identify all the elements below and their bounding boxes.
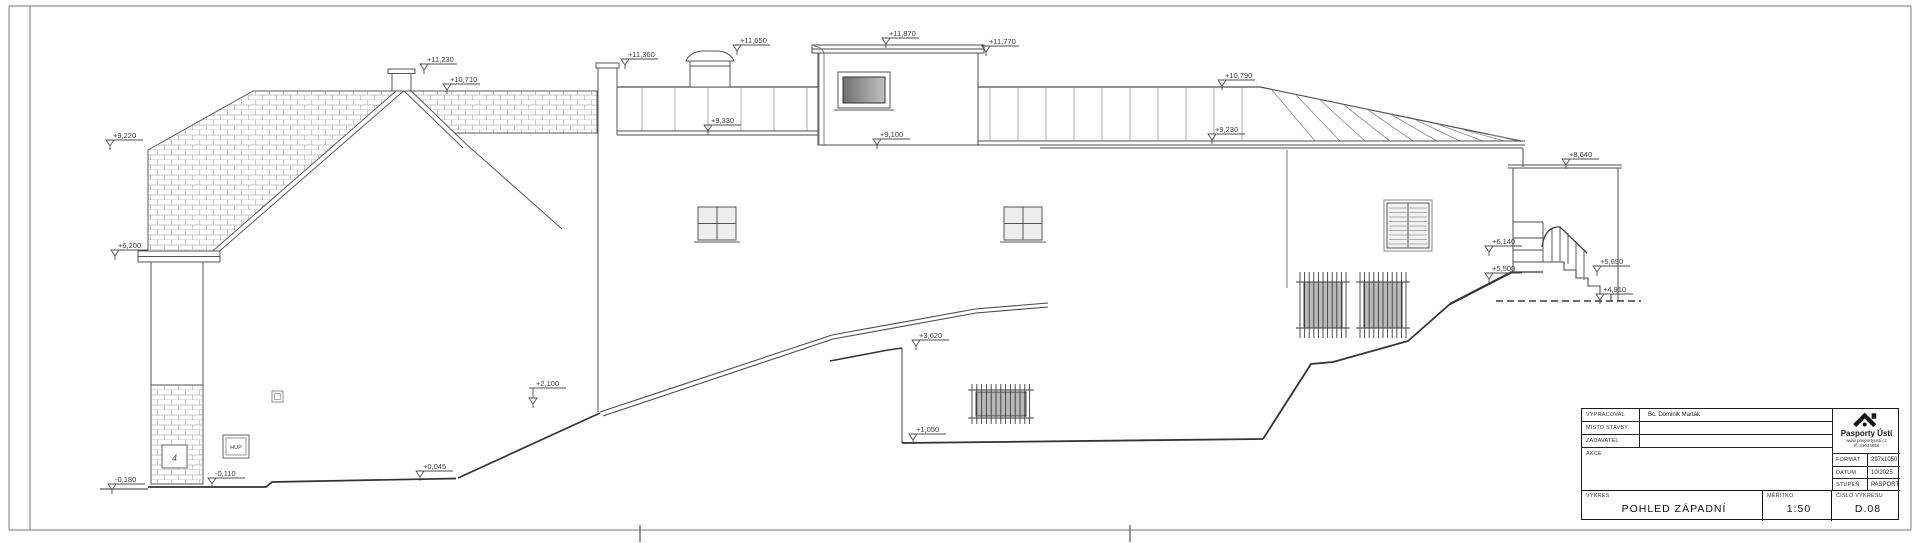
titleblock-label-zadavatel: ZADAVATEL (1582, 435, 1640, 448)
chimney-left (388, 69, 415, 91)
stupen-value: PASPORT (1868, 479, 1900, 491)
vykres-label: VÝKRES (1586, 493, 1610, 499)
titleblock-label-misto-stavby: MÍSTO STAVBY (1582, 422, 1640, 435)
elevation-label: +11,870 (889, 29, 916, 38)
format-label: FORMÁT (1832, 454, 1868, 467)
elevation-marker: +9,220 (106, 131, 143, 150)
elevation-label: +9,330 (711, 116, 734, 125)
window-4pane-left (694, 207, 740, 242)
house-number: 4 (172, 453, 177, 463)
wall-backdrop (598, 45, 1618, 443)
elevation-label: +5,690 (1600, 257, 1623, 266)
titleblock-value-zadavatel (1640, 435, 1832, 448)
barred-window-1 (1296, 272, 1350, 338)
elevation-label: +11,360 (628, 50, 655, 59)
elevation-label: +10,790 (1225, 71, 1252, 80)
left-building: 4 HUP (138, 69, 597, 484)
format-value: 297x1050 (1868, 454, 1900, 467)
elevation-label: +11,230 (427, 55, 454, 64)
titleblock-meritko-cell: MĚŘÍTKO 1:50 (1763, 491, 1832, 521)
elevation-label: +5,500 (1492, 264, 1515, 273)
elevation-label: +2,100 (536, 379, 559, 388)
hup-label: HUP (230, 445, 242, 451)
cislo-vykresu-label: ČÍSLO VÝKRESU (1836, 493, 1883, 499)
elevation-label: +6,140 (1492, 237, 1515, 246)
elevation-label: +9,100 (880, 130, 903, 139)
elevation-label: -0,180 (115, 475, 136, 484)
drawing-title: POHLED ZÁPADNÍ (1586, 503, 1762, 515)
logo-name: Pasporty Ústí (1833, 430, 1900, 438)
titleblock-value-vypracoval: Bc. Dominik Marták (1640, 409, 1832, 422)
cornice (138, 251, 220, 262)
titleblock-vykres-cell: VÝKRES POHLED ZÁPADNÍ (1582, 491, 1763, 521)
small-wall-box (272, 391, 283, 402)
titleblock-logo-cell: Pasporty Ústí www.pasportyusti.cz IČ:216… (1832, 409, 1900, 454)
elevation-marker: -0,180 (108, 475, 145, 494)
titleblock-cislo-cell: ČÍSLO VÝKRESU D.08 (1832, 491, 1900, 521)
titleblock-label-akce: AKCE (1582, 448, 1832, 491)
titleblock-value-misto-stavby (1640, 422, 1832, 435)
meritko-label: MĚŘÍTKO (1767, 493, 1793, 499)
datum-value: 10/2025 (1868, 467, 1900, 479)
elevation-marker: +8,640 (1562, 150, 1599, 169)
middle-building (596, 45, 1618, 443)
elevation-label: +3,620 (919, 331, 942, 340)
pasporty-logo-icon (1850, 411, 1884, 428)
cellar-grille-window (968, 384, 1034, 424)
logo-ico: IČ:21634856 (1833, 443, 1900, 448)
stupen-label: STUPEŇ (1832, 479, 1868, 491)
elevation-label: -0,110 (215, 469, 236, 478)
title-block: VYPRACOVAL Bc. Dominik Marták MÍSTO STAV… (1581, 408, 1899, 520)
drawing-number: D.08 (1836, 503, 1900, 515)
elevation-label: +10,710 (450, 75, 477, 84)
elevation-label: +9,230 (1215, 125, 1238, 134)
elevation-label: +4,910 (1603, 285, 1626, 294)
elevation-marker: +11,360 (621, 50, 658, 69)
elevation-marker: +2,100 (529, 379, 566, 408)
elevation-marker: +11,650 (733, 36, 770, 55)
elevation-label: +8,640 (1569, 150, 1592, 159)
drawing-sheet: 4 HUP (0, 0, 1920, 543)
elevation-label: +11,650 (740, 36, 767, 45)
elevation-marker: -0,110 (208, 469, 245, 488)
elevation-label: +0,045 (423, 462, 446, 471)
elevation-label: +9,220 (113, 131, 136, 140)
chimney-middle (686, 51, 734, 87)
elevation-label: +6,200 (118, 241, 141, 250)
barred-window-2 (1356, 272, 1410, 338)
elevation-label: +1,050 (916, 425, 939, 434)
elevation-label: +11,770 (989, 37, 1016, 46)
scale-value: 1:50 (1767, 503, 1831, 515)
elevation-marker: +11,770 (982, 37, 1019, 56)
elevation-marker: +11,230 (420, 55, 457, 74)
datum-label: DATUM (1832, 467, 1868, 479)
louver-window (1384, 200, 1432, 251)
window-4pane-right (1000, 207, 1046, 242)
titleblock-label-vypracoval: VYPRACOVAL (1582, 409, 1640, 422)
